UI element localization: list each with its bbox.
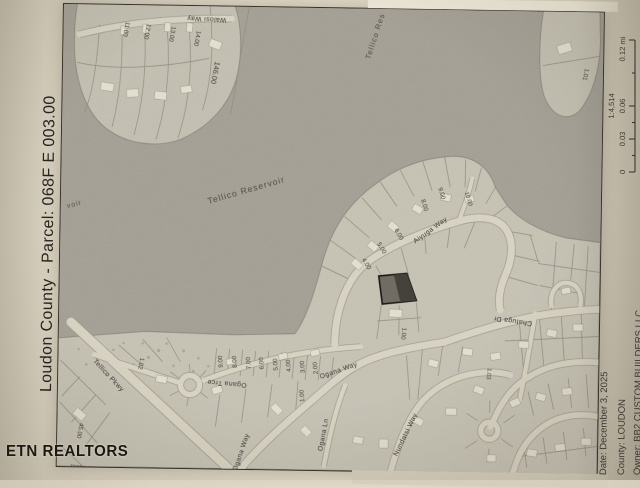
scale-tick-0: 0	[618, 170, 627, 174]
scale-ratio: 1:4,514	[607, 93, 616, 118]
map-info-county: County: LOUDON	[616, 399, 628, 475]
scale-bar: 0.12 mi 0.06 1:4,514 0.03 0	[598, 24, 640, 184]
map-info-date: Date: December 3, 2025	[598, 371, 610, 475]
etn-realtors-watermark: ETN REALTORS	[6, 443, 128, 461]
parcel-map-canvas: Tellico Reservoir Tellico Res voir Walos…	[57, 4, 604, 474]
photo-grain-overlay	[57, 4, 604, 474]
scale-tick-012: 0.12 mi	[618, 36, 627, 61]
map-info-owner: Owner: BB2 CUSTOM BUILDERS LLC	[632, 310, 640, 475]
scale-tick-006: 0.06	[618, 98, 627, 113]
paper-margin-bottom	[352, 470, 608, 488]
parcel-map-photo: Tellico Reservoir Tellico Res voir Walos…	[56, 3, 605, 475]
scale-tick-003: 0.03	[618, 131, 627, 146]
page-title: Loudon County - Parcel: 068F E 003.00	[38, 95, 60, 392]
